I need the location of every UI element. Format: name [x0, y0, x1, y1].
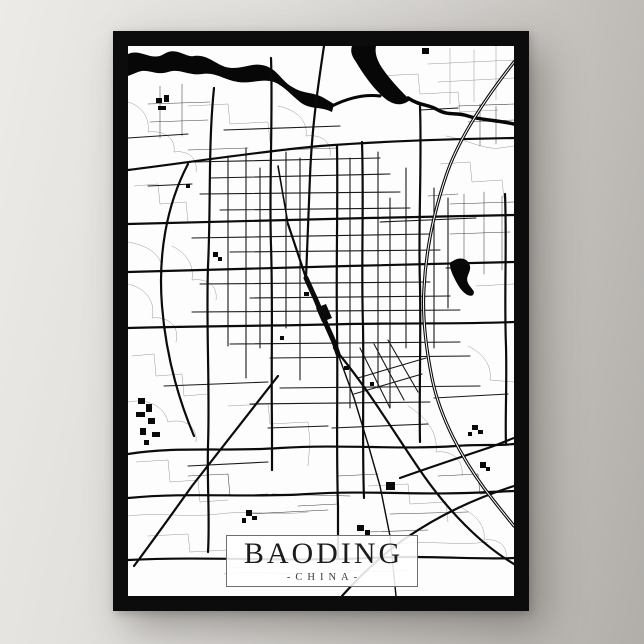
map-print-area: BAODING -CHINA- [128, 46, 514, 596]
poster-subtitle: -CHINA- [282, 572, 362, 583]
title-plate: BAODING -CHINA- [226, 535, 418, 587]
product-photo: { "poster": { "title": "BAODING", "subti… [0, 0, 644, 644]
poster-title: BAODING [241, 539, 403, 569]
map-canvas [128, 46, 514, 596]
map-poster: BAODING -CHINA- [113, 31, 529, 611]
